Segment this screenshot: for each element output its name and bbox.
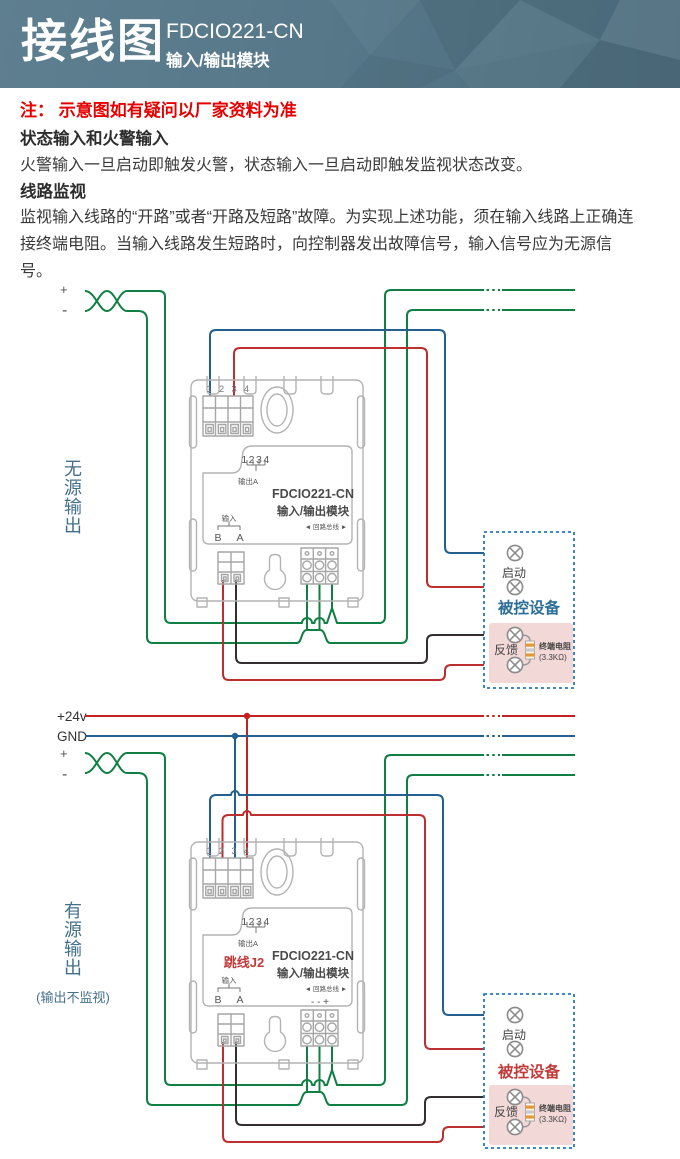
d2-loop-break-marks [487, 755, 501, 775]
d1-plus-label: + [60, 282, 68, 297]
d1-wire-start-red [234, 348, 507, 587]
d2-resistor-name: 终端电阻 [538, 1103, 571, 1113]
d2-device-label: 被控设备 [498, 1062, 561, 1081]
d2-bus-gnd [85, 736, 575, 858]
module-1 [190, 376, 365, 607]
d2-junction-gnd [232, 733, 238, 739]
d2-feedback-label: 反馈 [494, 1105, 518, 1119]
d1-resistor-value: (3.3KΩ) [539, 653, 567, 662]
d1-wire-feedback-black [236, 580, 507, 663]
d2-bus-24v [85, 716, 575, 858]
loop-polarity-label: - - + [311, 997, 329, 1008]
page: 接线图 FDCIO221-CN 输入/输出模块 注： 示意图如有疑问以厂家资料为… [0, 0, 680, 1159]
jumper-j2-label: 跳线J2 [224, 955, 264, 970]
d2-junction-24v [244, 713, 250, 719]
d2-gnd-label: GND [57, 729, 87, 744]
d2-start-label: 启动 [502, 1028, 526, 1042]
d2-minus-label: - [62, 766, 67, 783]
module-2 [190, 838, 365, 1069]
d2-plus-label: + [60, 746, 68, 761]
d1-resistor-name: 终端电阻 [538, 641, 571, 651]
d2-wire-feedback-red [223, 1042, 507, 1142]
d1-minus-label: - [62, 302, 67, 319]
d2-wire-feedback-black [236, 1042, 507, 1125]
d1-start-label: 启动 [502, 566, 526, 580]
d2-24v-label: +24v [57, 709, 87, 724]
diagram2: +24v GND + - 跳线J2 - - [57, 709, 575, 1148]
d2-resistor-value: (3.3KΩ) [539, 1115, 567, 1124]
d1-loop-break-marks [487, 290, 501, 310]
diagram1: + - [60, 282, 575, 688]
d1-device-label: 被控设备 [498, 598, 561, 617]
d1-wire-feedback-red [223, 580, 507, 680]
wiring-diagram: 1234 输出A FDCIO221-CN 输入/输出模块 输入 B A ◄ 回路… [0, 0, 680, 1159]
d1-feedback-label: 反馈 [494, 643, 518, 657]
